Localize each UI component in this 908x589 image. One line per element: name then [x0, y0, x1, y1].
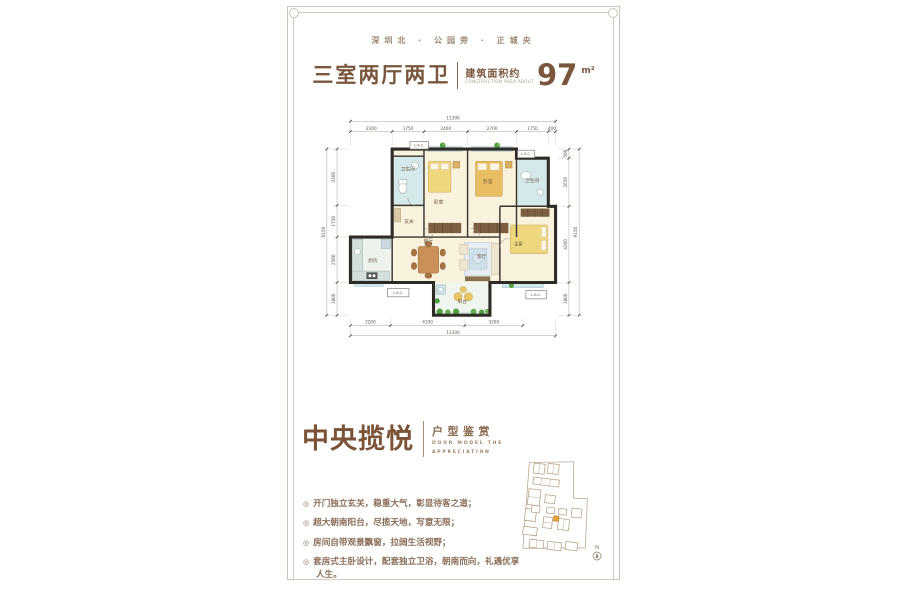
room-label-bedroom1: 卧室: [434, 198, 444, 205]
dim-label: 2500: [331, 254, 336, 265]
dim-label: 4200: [563, 239, 568, 250]
room-label-living: 客厅: [477, 253, 487, 260]
site-boundary: [519, 456, 596, 555]
project-name: 中央揽悦: [302, 426, 414, 453]
dim-right-total: 9150: [573, 226, 578, 237]
dim-label: 2300: [366, 126, 377, 131]
layout-title: 三室两厅两卫: [312, 65, 450, 86]
frame-corner-curl-right: [608, 8, 618, 18]
area-unit: m²: [581, 66, 594, 88]
page-background: { "header": { "tagline": "深圳北 · 公园旁 · 正城…: [0, 0, 908, 570]
feature-bullet: ◎套房式主卧设计，配套独立卫浴，朝南而向，礼遇优享人生。: [303, 556, 525, 583]
dim-right: 500 2650 4200 1800 9150: [563, 148, 581, 317]
bullet-marker-icon: ◎: [303, 519, 309, 527]
dim-left-total: 9150: [321, 226, 326, 237]
floor-plan-svg: 11300 2300 1750 2400 2700 1750 400 2200 …: [299, 108, 607, 346]
bullet-marker-icon: ◎: [303, 500, 309, 508]
site-key-plan-svg: N: [514, 450, 606, 572]
bullet-marker-icon: ◎: [303, 539, 309, 547]
section-subtitle: 户型鉴赏: [432, 423, 503, 439]
room-label-bath2: 卫生间: [525, 177, 539, 184]
dim-label: 1750: [527, 126, 538, 131]
room-label-bath1: 卫生间: [401, 166, 415, 173]
lac-label: L.A.C.: [393, 291, 403, 295]
room-label-kitchen: 厨房: [368, 257, 378, 264]
room-label-dining: 餐厅: [424, 237, 434, 244]
brochure-card: 深圳北 · 公园旁 · 正城央 三室两厅两卫 建筑面积约 CONSTRUCTIO…: [287, 6, 620, 576]
title-divider: [457, 62, 458, 89]
feature-bullet: ◎开门独立玄关，稳重大气，彰显待客之道；: [303, 498, 525, 511]
dim-label: 500: [563, 149, 568, 157]
dim-top: 11300 2300 1750 2400 2700 1750 400: [349, 115, 557, 133]
dim-bottom-total: 11300: [446, 330, 460, 335]
dim-label: 2200: [365, 320, 376, 325]
north-label: N: [595, 545, 599, 551]
dim-label: 1750: [331, 216, 336, 227]
area-block: 建筑面积约 CONSTRUCTION AREA ABOUT 97 m²: [465, 63, 594, 88]
room-label-balcony: 阳台: [458, 298, 468, 305]
dim-label: 2400: [440, 126, 451, 131]
dim-label: 400: [548, 126, 556, 131]
floor-plan: 11300 2300 1750 2400 2700 1750 400 2200 …: [299, 108, 607, 346]
dim-label: 1800: [331, 293, 336, 304]
dim-top-total: 11300: [446, 115, 460, 120]
highlighted-unit: [553, 516, 559, 522]
bullet-marker-icon: ◎: [303, 558, 309, 566]
frame-corner-curl-left: [289, 8, 299, 18]
dim-label: 3200: [488, 320, 499, 325]
room-label-master: 主卧: [514, 240, 524, 247]
room-label-bedroom2: 卧室: [483, 178, 493, 185]
dim-label: 2700: [487, 126, 498, 131]
feature-list: ◎开门独立玄关，稳重大气，彰显待客之道； ◎超大朝南阳台，尽揽天地，写意无限； …: [303, 498, 525, 589]
lac-label: L.A.C.: [414, 143, 424, 147]
section-subtitle-en-1: DOOR MODEL THE: [432, 441, 503, 448]
north-arrow-icon: N: [593, 545, 601, 560]
dim-label: 2650: [563, 177, 568, 188]
area-label-en: CONSTRUCTION AREA ABOUT: [465, 80, 534, 85]
area-value: 97: [537, 63, 577, 88]
lac-label: L.A.C.: [531, 293, 541, 297]
dim-left: 9150 3100 1750 2500 1800: [321, 148, 339, 317]
feature-bullet: ◎超大朝南阳台，尽揽天地，写意无限；: [303, 517, 525, 530]
headline-row: 三室两厅两卫 建筑面积约 CONSTRUCTION AREA ABOUT 97 …: [287, 62, 620, 89]
lac-label: L.A.C.: [521, 152, 531, 156]
location-tagline: 深圳北 · 公园旁 · 正城央: [287, 35, 620, 46]
section-subtitle-en-2: APPRECIATION: [432, 450, 503, 457]
section-divider: [423, 421, 424, 457]
dim-bottom: 2200 4100 3200 11300: [349, 320, 557, 337]
dim-label: 1800: [563, 293, 568, 304]
dim-label: 3100: [331, 172, 336, 183]
section-title-row: 中央揽悦 户型鉴赏 DOOR MODEL THE APPRECIATION: [302, 421, 503, 457]
feature-bullet: ◎房间自带观景飘窗，拉阔生活视野；: [303, 537, 525, 550]
site-key-plan: N: [514, 450, 606, 572]
room-label-foyer: 玄关: [404, 218, 414, 225]
dim-label: 4100: [422, 320, 433, 325]
dim-label: 1750: [403, 126, 414, 131]
